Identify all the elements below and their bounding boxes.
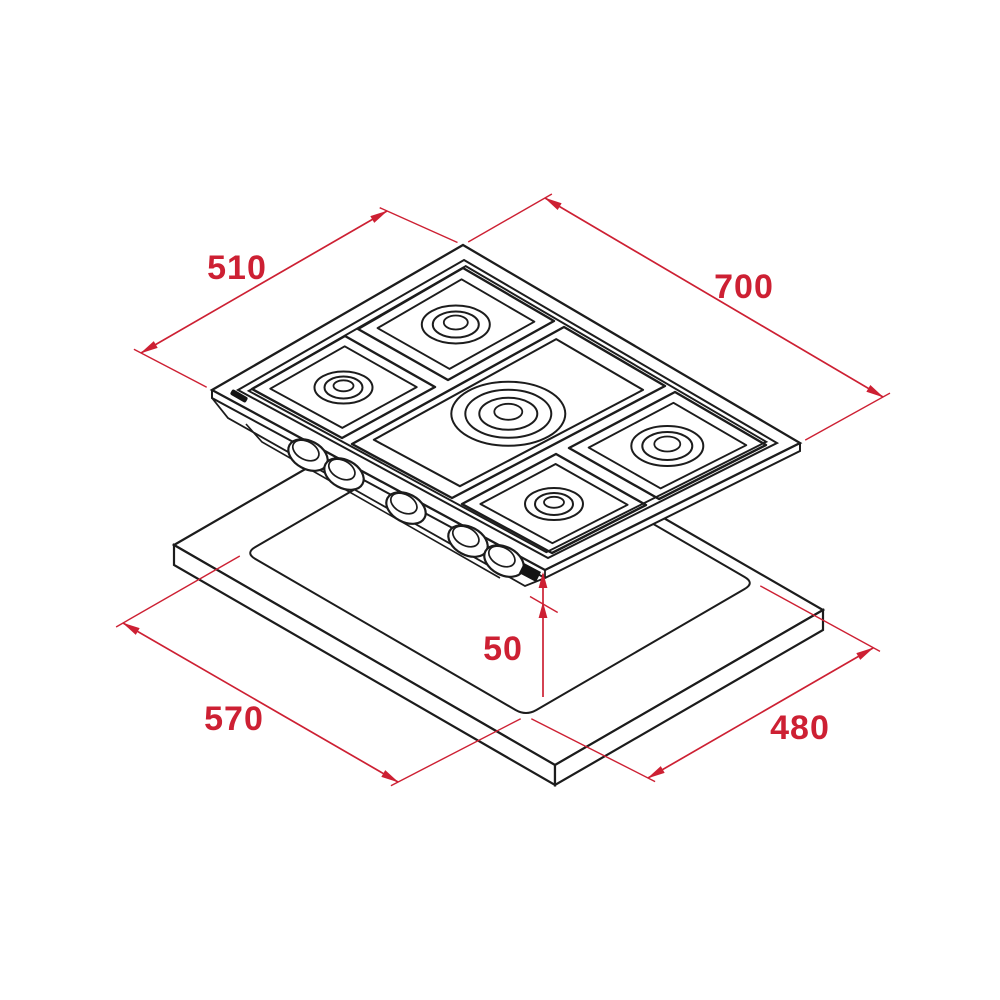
label-hob-depth: 510 <box>207 249 267 287</box>
extension-line <box>134 349 207 387</box>
extension-line <box>805 393 890 440</box>
label-cutout-depth: 480 <box>770 709 830 747</box>
label-clearance: 50 <box>483 630 523 668</box>
burner-back-right <box>631 426 703 466</box>
burner-center-wok <box>451 382 565 446</box>
burner-front-right <box>525 488 583 520</box>
installation-diagram-page: 510 700 570 480 50 <box>0 0 1000 1000</box>
installation-diagram: 510 700 570 480 50 <box>0 0 1000 1000</box>
extension-line <box>468 194 552 242</box>
label-hob-width: 700 <box>714 268 774 306</box>
burner-back-left <box>422 306 490 344</box>
label-cutout-width: 570 <box>204 700 264 738</box>
burner-front-left <box>315 372 373 404</box>
extension-line <box>380 208 458 243</box>
